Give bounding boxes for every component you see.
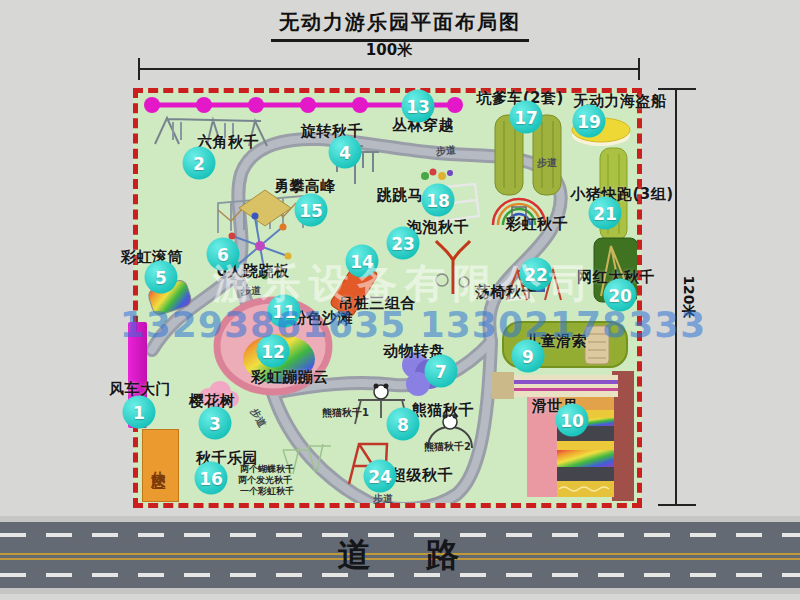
climbing-peak-shape — [218, 190, 303, 233]
windmill-gate-block — [128, 322, 147, 428]
pirate-ship-shape — [572, 118, 630, 146]
dimension-tick — [658, 88, 696, 90]
page-title: 无动力游乐园平面布局图 — [271, 9, 529, 42]
super-swing-shape — [349, 444, 387, 484]
hanging-pile-combo-shape — [329, 260, 379, 318]
road: 道 路 — [0, 516, 800, 594]
rainbow-swing-arcs — [493, 199, 545, 225]
dimension-line — [675, 88, 677, 506]
children-zipline-shape — [503, 322, 627, 367]
road-label: 道 路 — [337, 533, 463, 578]
dimension-tick — [138, 58, 140, 80]
rest-area-block — [142, 429, 179, 502]
hexagon-swing-shape — [155, 118, 267, 146]
width-dimension: 100米 — [138, 58, 640, 80]
width-dimension-label: 100米 — [366, 41, 412, 60]
dimension-tick — [638, 58, 640, 80]
jungle-crossing-chain — [144, 97, 463, 113]
panda-swing-2-shape — [428, 414, 472, 449]
height-dimension-label: 120米 — [679, 275, 697, 318]
dimension-line — [138, 68, 640, 70]
piggy-run-track-shape — [600, 148, 627, 240]
animal-turntable-shape — [402, 352, 445, 396]
swing-chair-shape — [507, 270, 561, 300]
jumping-horse-shape — [421, 169, 479, 223]
pink-beach-shape — [214, 297, 332, 395]
big-swing-shape — [594, 238, 638, 302]
cherry-tree-shape — [199, 381, 239, 419]
park-map — [133, 88, 642, 508]
dimension-tick — [658, 504, 696, 506]
park-structures — [133, 88, 642, 508]
slide-world-shape — [492, 371, 634, 501]
height-dimension: 120米 — [658, 88, 696, 506]
bubble-swing-shape — [436, 241, 470, 294]
scene: 无动力游乐园平面布局图 100米 120米 — [0, 0, 800, 600]
